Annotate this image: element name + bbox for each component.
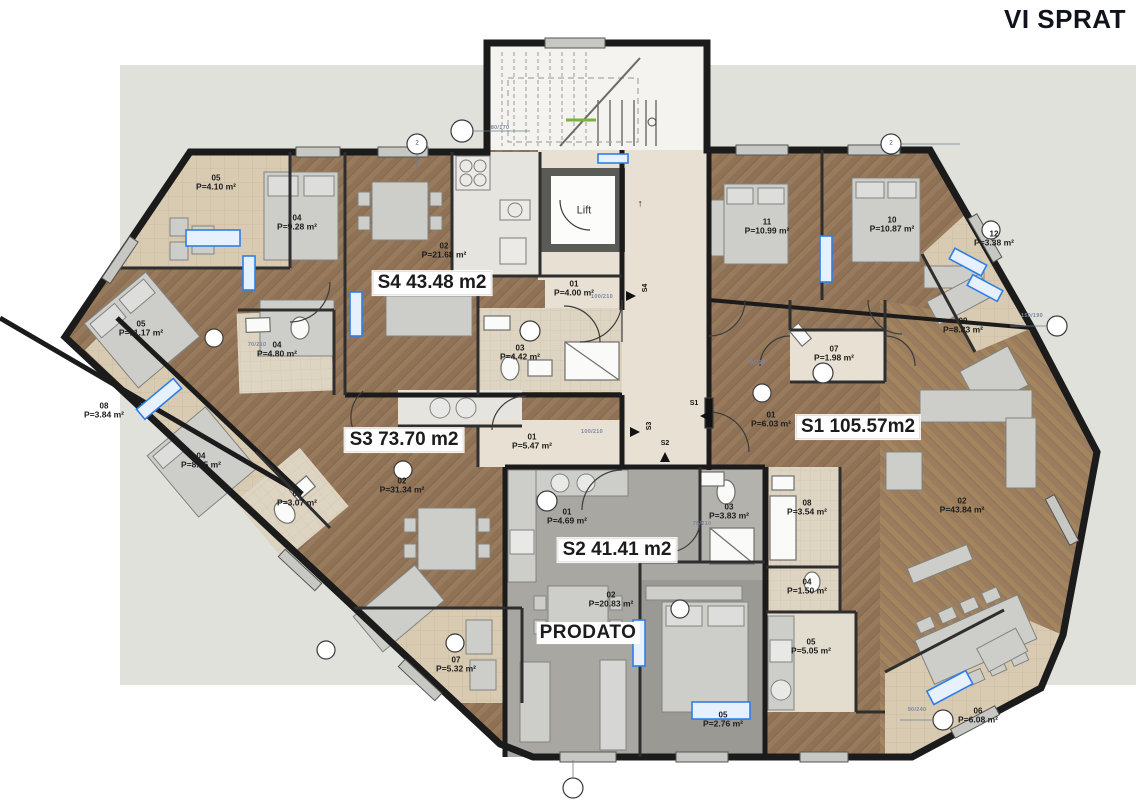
s4-hall-floor [545, 252, 622, 308]
lift-car [551, 176, 615, 244]
floor-plan-page: VI SPRAT Lift ↑ S4 43.48 m2 S3 73.70 m2 … [0, 0, 1136, 800]
stairwell-floor [490, 46, 704, 150]
s1-wc-floor [766, 567, 840, 612]
floor-plan-drawing [0, 0, 1136, 800]
page-title: VI SPRAT [1004, 4, 1126, 35]
corridor [620, 150, 709, 470]
